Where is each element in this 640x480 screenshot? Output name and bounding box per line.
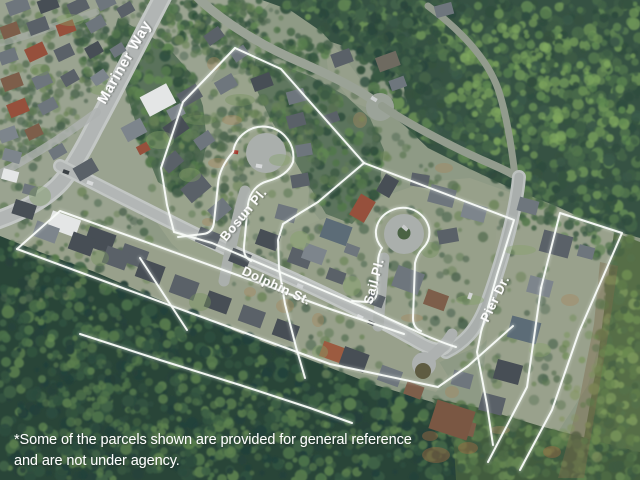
svg-text:*Some of the parcels shown are: *Some of the parcels shown are provided … (14, 432, 412, 448)
svg-text:and are not under agency.: and are not under agency. (14, 453, 180, 469)
